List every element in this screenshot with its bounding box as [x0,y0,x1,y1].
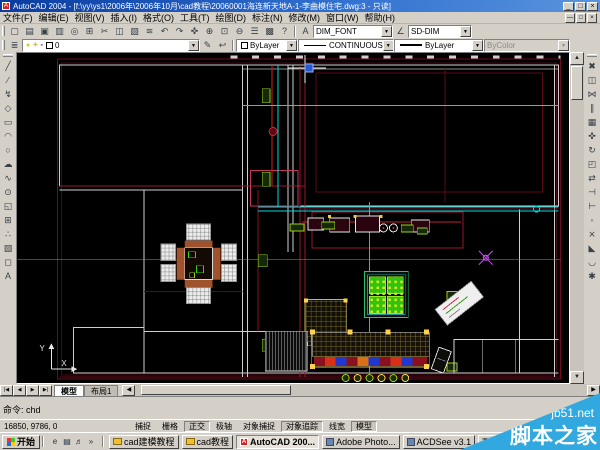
dim-style-icon: ∠ [396,27,404,36]
break-at-point-icon: ◦ [590,216,593,225]
svg-text:Y: Y [40,344,46,353]
app-icon [326,438,334,446]
menu-item-6[interactable]: 绘图(D) [213,12,250,24]
cut-button[interactable]: ✂ [97,25,112,38]
construction-line-icon: ∕ [7,76,9,85]
open-button[interactable]: ▤ [22,25,37,38]
start-button[interactable]: 开始 [2,435,40,449]
dim-style-button[interactable]: ∠ [393,25,408,38]
publish-button[interactable]: ⊞ [82,25,97,38]
paste-button[interactable]: ▨ [127,25,142,38]
point-icon: ∴ [5,230,11,239]
status-toggle-2[interactable]: 正交 [184,421,210,432]
app-icon [407,438,415,446]
media-player-icon[interactable]: ♬ [73,435,85,448]
vertical-scroll-thumb[interactable] [571,66,583,100]
scroll-down-icon[interactable]: ▼ [570,371,584,384]
taskbar-window-0[interactable]: cad建模教程 [109,435,179,449]
folder-icon [113,438,122,445]
make-block-button[interactable]: ⊞ [1,213,15,227]
trim-icon: ⊣ [588,188,596,197]
grip-box [305,64,313,72]
lineweight-value: ByLayer [425,41,454,50]
horizontal-scrollbar[interactable]: ◀ ▶ [122,384,600,396]
scroll-left-icon[interactable]: ◀ [122,385,135,396]
floor-plan-drawing[interactable]: Y X [17,53,569,383]
menu-item-5[interactable]: 工具(T) [177,12,213,24]
autocad-window: A AutoCAD 2004 - [f:\yy\ys1\2006年\2006年1… [0,0,600,450]
explode-icon: ✱ [588,272,596,281]
copy-button[interactable]: ◫ [112,25,127,38]
layer-color-swatch [46,42,53,49]
chevron-down-icon[interactable]: ▼ [472,40,483,51]
layer-previous-button[interactable]: ↩ [215,39,230,52]
quicklaunch-more-icon[interactable]: » [85,435,97,448]
drawing-area[interactable]: Y X [16,52,570,384]
copy-object-button[interactable]: ◫ [585,73,599,87]
rotate-button[interactable]: ↻ [585,143,599,157]
make-object-layer-current-button[interactable]: ✎ [200,39,215,52]
erase-icon: ✖ [588,62,596,71]
rotate-icon: ↻ [588,146,596,155]
make-layer-current-icon: ✎ [204,41,212,50]
toolbar-grip[interactable] [2,40,5,50]
vertical-scrollbar[interactable]: ▲ ▼ [570,52,584,384]
sun-icon: ☀ [32,41,38,49]
explode-button[interactable]: ✱ [585,269,599,283]
command-prompt[interactable]: 命令: chd [3,403,41,416]
toolbar-grip[interactable] [3,54,13,57]
color-value: ByLayer [250,41,279,50]
linetype-combo[interactable]: CONTINUOUS ▼ [298,39,394,52]
spline-button[interactable]: ∿ [1,171,15,185]
undo-icon: ↶ [161,27,169,36]
layout-tab-row: |◀◀▶▶| 模型布局1 ◀ ▶ [0,384,600,396]
status-toggle-4[interactable]: 对象捕捉 [238,421,280,432]
publish-icon: ⊞ [86,27,94,36]
insert-block-icon: ◱ [4,202,13,211]
plot-icon: ▥ [55,27,64,36]
menu-item-2[interactable]: 视图(V) [72,12,108,24]
copy-object-icon: ◫ [588,76,597,85]
trim-button[interactable]: ⊣ [585,185,599,199]
offset-icon: ∥ [590,104,595,113]
status-toggle-5[interactable]: 对象追踪 [281,421,323,432]
linetype-sample [304,45,326,46]
multiline-text-button[interactable]: A [1,269,15,283]
pan-button[interactable]: ✜ [187,25,202,38]
taskbar-window-3[interactable]: Adobe Photo... [322,435,400,449]
ellipse-icon: ⊙ [4,188,12,197]
chamfer-button[interactable]: ◣ [585,241,599,255]
chevron-down-icon[interactable]: ▼ [383,40,394,51]
pan-icon: ✜ [191,27,199,36]
green-mat [365,272,409,318]
zoom-window-icon: ⊡ [221,27,229,36]
close-button[interactable]: × [587,2,598,11]
insert-block-button[interactable]: ◱ [1,199,15,213]
extend-icon: ⊢ [588,202,596,211]
menu-bar: 文件(F)编辑(E)视图(V)插入(I)格式(O)工具(T)绘图(D)标注(N)… [0,12,600,24]
zoom-previous-button[interactable]: ⊖ [232,25,247,38]
redo-icon: ↷ [176,27,184,36]
chevron-down-icon: ▼ [558,40,569,51]
svg-text:X: X [61,359,67,368]
plotstyle-value: ByColor [487,41,515,50]
title-bar[interactable]: A AutoCAD 2004 - [f:\yy\ys1\2006年\2006年1… [0,0,600,12]
hatch-button[interactable]: ▨ [1,241,15,255]
array-button[interactable]: ▦ [585,115,599,129]
tab-nav-3[interactable]: ▶| [39,385,52,396]
save-button[interactable]: ▣ [37,25,52,38]
point-button[interactable]: ∴ [1,227,15,241]
polygon-icon: ◇ [5,104,12,113]
arc-icon: ◠ [4,132,12,141]
properties-icon: ☰ [250,27,258,36]
multiline-text-icon: A [5,272,11,281]
zoom-realtime-button[interactable]: ⊕ [202,25,217,38]
design-center-icon: ▩ [265,27,274,36]
tab-nav-0[interactable]: |◀ [0,385,13,396]
long-counter [310,329,429,369]
new-button[interactable]: ▢ [7,25,22,38]
horizontal-scroll-thumb[interactable] [141,385,291,395]
restore-button[interactable]: □ [575,2,586,11]
hatch-icon: ▨ [4,244,13,253]
properties-toolbar: ≣ ●☀▪ 0 ▼ ✎ ↩ ByLayer ▼ CONTINUOUS ▼ ByL… [0,38,600,52]
paste-icon: ▨ [130,27,139,36]
stretch-icon: ⇄ [588,174,596,183]
region-button[interactable]: ◻ [1,255,15,269]
status-toggle-1[interactable]: 栅格 [157,421,183,432]
menu-item-3[interactable]: 插入(I) [108,12,141,24]
internet-explorer-icon[interactable]: e [49,435,61,448]
plot-preview-icon: ◎ [71,27,79,36]
cut-icon: ✂ [101,27,109,36]
lock-icon: ▪ [41,42,43,49]
minimize-button[interactable]: _ [563,2,574,11]
plotstyle-combo: ByColor ▼ [484,39,570,52]
child-restore-button[interactable]: □ [576,13,586,23]
window-title: AutoCAD 2004 - [f:\yy\ys1\2006年\2006年10月… [13,1,391,12]
status-toggle-7[interactable]: 模型 [351,421,377,432]
coordinate-readout: 16850, 9786, 0 [0,422,130,431]
region-icon: ◻ [4,258,11,267]
text-style-value: DIM_FONT [316,27,357,36]
text-style-combo[interactable]: DIM_FONT ▼ [313,25,393,38]
tab-nav-2[interactable]: ▶ [26,385,39,396]
toolbar-grip[interactable] [587,54,597,57]
dim-style-value: SD-DIM [411,27,439,36]
scale-icon: ◰ [588,160,597,169]
bulb-icon: ● [26,42,30,49]
arc-button[interactable]: ◠ [1,129,15,143]
fillet-button[interactable]: ◡ [585,255,599,269]
zoom-previous-icon: ⊖ [236,27,244,36]
folder-icon [186,438,195,445]
new-icon: ▢ [10,27,19,36]
layer-manager-button[interactable]: ≣ [7,39,22,52]
line-button[interactable]: ╱ [1,59,15,73]
help-button[interactable]: ? [277,25,292,38]
revision-cloud-icon: ☁ [4,160,13,169]
menu-item-1[interactable]: 编辑(E) [36,12,72,24]
dim-style-combo[interactable]: SD-DIM ▼ [408,25,472,38]
menu-item-4[interactable]: 格式(O) [140,12,177,24]
circle-button[interactable]: ○ [1,143,15,157]
break-icon: ⨯ [588,230,596,239]
polyline-button[interactable]: ↯ [1,87,15,101]
menu-item-8[interactable]: 修改(M) [286,12,324,24]
polyline-icon: ↯ [4,90,12,99]
chevron-down-icon[interactable]: ▼ [286,40,297,51]
child-close-button[interactable]: × [587,13,597,23]
status-toggle-3[interactable]: 极轴 [211,421,237,432]
undo-button[interactable]: ↶ [157,25,172,38]
ellipse-button[interactable]: ⊙ [1,185,15,199]
autocad-icon: A [240,438,248,446]
rectangle-button[interactable]: ▭ [1,115,15,129]
make-block-icon: ⊞ [4,216,12,225]
louver-panel [265,331,307,371]
taskbar-window-2[interactable]: AAutoCAD 200... [236,435,319,449]
chevron-down-icon[interactable]: ▼ [381,26,392,37]
break-at-point-button[interactable]: ◦ [585,213,599,227]
watermark-name: 脚本之家 [510,420,598,450]
chevron-down-icon[interactable]: ▼ [188,40,199,51]
layout-tab-布局1[interactable]: 布局1 [84,385,118,396]
status-toggle-0[interactable]: 捕捉 [130,421,156,432]
spline-icon: ∿ [4,174,12,183]
plot-preview-button[interactable]: ◎ [67,25,82,38]
lineweight-combo[interactable]: ByLayer ▼ [394,39,484,52]
layer-previous-icon: ↩ [219,41,227,50]
windows-flag-icon [7,438,15,446]
match-properties-button[interactable]: ≋ [142,25,157,38]
construction-line-button[interactable]: ∕ [1,73,15,87]
scroll-up-icon[interactable]: ▲ [570,52,584,65]
offset-button[interactable]: ∥ [585,101,599,115]
mirror-icon: ⋈ [588,90,597,99]
child-minimize-button[interactable]: — [565,13,575,23]
modify-toolbar: ✖◫⋈∥▦✜↻◰⇄⊣⊢◦⨯◣◡✱ [584,52,600,384]
design-center-button[interactable]: ▩ [262,25,277,38]
rectangle-icon: ▭ [4,118,13,127]
color-combo[interactable]: ByLayer ▼ [236,39,298,52]
erase-button[interactable]: ✖ [585,59,599,73]
zoom-window-button[interactable]: ⊡ [217,25,232,38]
properties-button[interactable]: ☰ [247,25,262,38]
text-style-button[interactable]: A [298,25,313,38]
layout-tab-模型[interactable]: 模型 [54,385,84,396]
menu-item-10[interactable]: 帮助(H) [362,12,399,24]
menu-item-9[interactable]: 窗口(W) [323,12,362,24]
extend-button[interactable]: ⊢ [585,199,599,213]
tab-nav-1[interactable]: ◀ [13,385,26,396]
save-icon: ▣ [40,27,49,36]
menu-item-0[interactable]: 文件(F) [0,12,36,24]
polygon-button[interactable]: ◇ [1,101,15,115]
show-desktop-icon[interactable]: ▤ [61,435,73,448]
lineweight-sample [400,44,422,46]
text-style-icon: A [302,27,308,36]
app-icon: A [2,2,10,10]
scale-button[interactable]: ◰ [585,157,599,171]
chamfer-icon: ◣ [589,244,596,253]
break-button[interactable]: ⨯ [585,227,599,241]
open-icon: ▤ [25,27,34,36]
layers-icon: ≣ [11,41,19,50]
layer-combo[interactable]: ●☀▪ 0 ▼ [22,39,200,52]
circle-icon: ○ [5,146,10,155]
array-icon: ▦ [588,118,597,127]
revision-cloud-button[interactable]: ☁ [1,157,15,171]
move-icon: ✜ [588,132,596,141]
help-icon: ? [282,27,287,36]
status-toggle-6[interactable]: 线宽 [324,421,350,432]
match-properties-icon: ≋ [146,27,154,36]
taskbar-window-4[interactable]: ACDSee v3.1 [403,435,476,449]
layer-value: 0 [55,41,59,50]
fillet-icon: ◡ [588,258,596,267]
taskbar-window-1[interactable]: cad教程 [182,435,234,449]
toolbar-grip[interactable] [2,26,5,36]
draw-toolbar: ╱∕↯◇▭◠○☁∿⊙◱⊞∴▨◻A [0,52,16,384]
menu-item-7[interactable]: 标注(N) [249,12,286,24]
linetype-value: CONTINUOUS [329,41,383,50]
chevron-down-icon[interactable]: ▼ [460,26,471,37]
command-window[interactable]: 命令: chd [0,396,600,419]
color-swatch [241,42,248,49]
move-button[interactable]: ✜ [585,129,599,143]
standard-toolbar: ▢▤▣▥◎⊞✂◫▨≋↶↷✜⊕⊡⊖☰▩? A DIM_FONT ▼ ∠ SD-DI… [0,24,600,38]
plot-button[interactable]: ▥ [52,25,67,38]
redo-button[interactable]: ↷ [172,25,187,38]
mirror-button[interactable]: ⋈ [585,87,599,101]
copy-icon: ◫ [115,27,124,36]
line-icon: ╱ [5,62,10,71]
zoom-realtime-icon: ⊕ [206,27,214,36]
stretch-button[interactable]: ⇄ [585,171,599,185]
